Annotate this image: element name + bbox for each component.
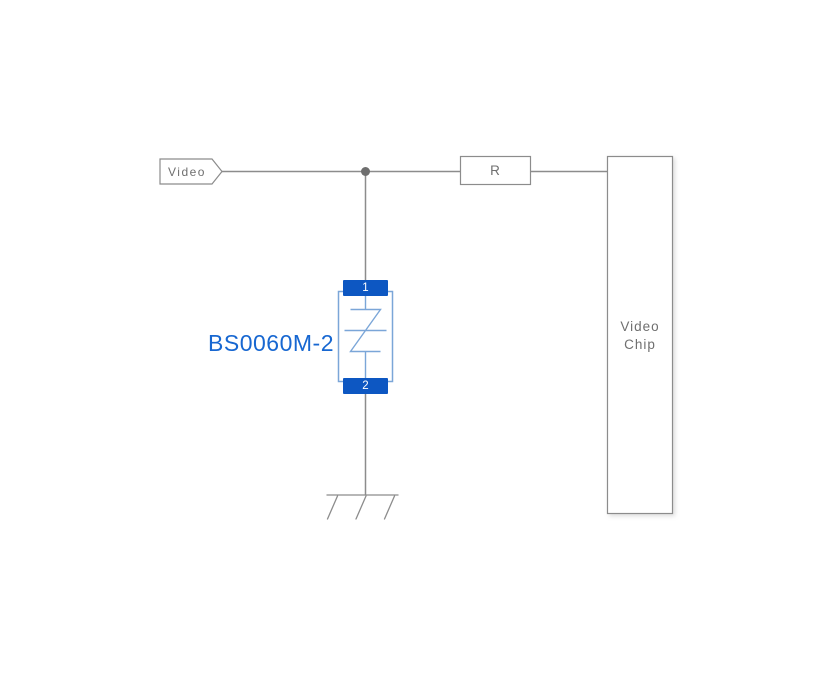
part-number-label: BS0060M-2 xyxy=(150,330,334,356)
video-chip-label: Video Chip xyxy=(615,318,665,354)
tvs-diode-component xyxy=(339,292,393,382)
video-net-label: Video xyxy=(160,159,214,184)
junction-dot xyxy=(361,167,370,176)
pin-1-pad: 1 xyxy=(343,280,388,296)
schematic-svg xyxy=(0,0,832,675)
pin-2-pad: 2 xyxy=(343,378,388,394)
circuit-diagram-canvas: Video R Video Chip BS0060M-2 1 2 xyxy=(0,0,832,675)
ground-hatch-right xyxy=(385,496,395,519)
ground-icon xyxy=(327,495,398,519)
resistor-label: R xyxy=(460,156,531,185)
ground-hatch-left xyxy=(328,496,338,519)
ground-hatch-middle xyxy=(356,496,366,519)
